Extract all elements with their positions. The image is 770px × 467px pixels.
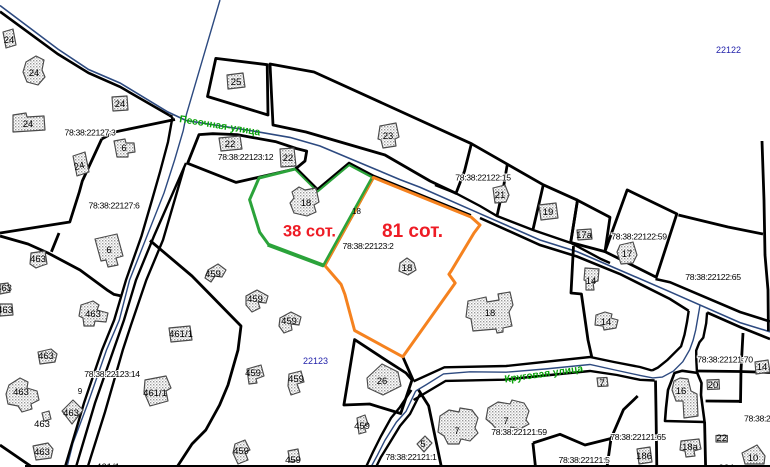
svg-text:78:38:22122:65: 78:38:22122:65 — [685, 272, 741, 282]
svg-text:24: 24 — [4, 35, 15, 46]
svg-text:7: 7 — [599, 378, 604, 389]
svg-text:78:38:22122:15: 78:38:22122:15 — [455, 173, 511, 183]
svg-text:463: 463 — [34, 447, 50, 458]
svg-text:25: 25 — [231, 77, 242, 88]
svg-text:463: 463 — [85, 309, 101, 320]
svg-text:10: 10 — [748, 453, 759, 464]
svg-text:78:38:22121:5: 78:38:22121:5 — [558, 455, 610, 465]
svg-text:459: 459 — [288, 374, 304, 385]
svg-text:14: 14 — [586, 276, 597, 287]
svg-text:20: 20 — [708, 380, 719, 391]
svg-text:78:38:22123:12: 78:38:22123:12 — [218, 152, 274, 162]
svg-text:463: 463 — [0, 305, 13, 316]
svg-text:461/1: 461/1 — [96, 462, 120, 467]
svg-text:18: 18 — [485, 308, 496, 319]
svg-text:22: 22 — [225, 139, 236, 150]
svg-text:463: 463 — [38, 351, 54, 362]
svg-text:24: 24 — [115, 99, 126, 110]
svg-text:78:38:22121:70: 78:38:22121:70 — [697, 355, 753, 365]
svg-text:5: 5 — [420, 439, 425, 450]
svg-text:78:38:22127:6: 78:38:22127:6 — [88, 201, 140, 211]
svg-text:19: 19 — [543, 207, 554, 218]
svg-text:78:38:22121:1: 78:38:22121:1 — [385, 452, 437, 462]
svg-text:7: 7 — [454, 426, 459, 437]
svg-text:17а: 17а — [576, 230, 593, 241]
svg-text:78:38:22123:14: 78:38:22123:14 — [84, 369, 140, 379]
svg-text:14: 14 — [757, 362, 768, 373]
svg-text:459: 459 — [285, 455, 301, 466]
svg-text:14: 14 — [601, 317, 612, 328]
svg-text:6: 6 — [121, 143, 126, 154]
svg-text:23: 23 — [383, 131, 394, 142]
svg-text:21: 21 — [495, 190, 506, 201]
svg-text:459: 459 — [281, 316, 297, 327]
svg-text:22: 22 — [716, 433, 727, 444]
svg-text:7: 7 — [503, 416, 508, 427]
svg-text:24: 24 — [23, 119, 34, 130]
svg-text:459: 459 — [247, 294, 263, 305]
svg-text:18: 18 — [352, 207, 361, 216]
svg-text:78:38:22127:3: 78:38:22127:3 — [64, 128, 116, 138]
svg-text:22123: 22123 — [303, 356, 328, 366]
svg-text:38 сот.: 38 сот. — [283, 223, 336, 241]
svg-text:459: 459 — [233, 446, 249, 457]
svg-text:78:38:22122:59: 78:38:22122:59 — [611, 232, 667, 242]
svg-text:22А: 22А — [719, 463, 737, 467]
svg-text:186: 186 — [636, 451, 652, 462]
svg-text:22122: 22122 — [716, 45, 741, 55]
svg-text:459: 459 — [354, 421, 370, 432]
svg-text:463: 463 — [34, 419, 50, 430]
svg-text:461/1: 461/1 — [143, 388, 167, 399]
svg-text:24: 24 — [29, 68, 40, 79]
svg-text:9: 9 — [78, 387, 83, 396]
svg-text:18: 18 — [301, 198, 312, 209]
svg-text:78:38:22121:65: 78:38:22121:65 — [610, 432, 666, 442]
svg-text:26: 26 — [377, 376, 388, 387]
svg-text:18а: 18а — [682, 442, 699, 453]
svg-text:463: 463 — [0, 283, 12, 294]
svg-text:78:38:2: 78:38:2 — [744, 414, 770, 424]
svg-text:463: 463 — [30, 254, 46, 265]
svg-text:81 сот.: 81 сот. — [382, 221, 443, 242]
svg-text:459: 459 — [245, 368, 261, 379]
svg-text:18: 18 — [402, 263, 413, 274]
svg-text:461/1: 461/1 — [169, 329, 193, 340]
svg-text:78:38:22123:2: 78:38:22123:2 — [342, 241, 394, 251]
svg-text:459: 459 — [205, 269, 221, 280]
svg-text:463: 463 — [63, 408, 79, 419]
svg-text:6: 6 — [106, 245, 111, 256]
svg-text:78:38:22121:59: 78:38:22121:59 — [491, 427, 547, 437]
svg-text:16: 16 — [676, 386, 687, 397]
svg-text:22: 22 — [283, 153, 294, 164]
svg-text:463: 463 — [13, 387, 29, 398]
svg-text:17: 17 — [622, 249, 633, 260]
